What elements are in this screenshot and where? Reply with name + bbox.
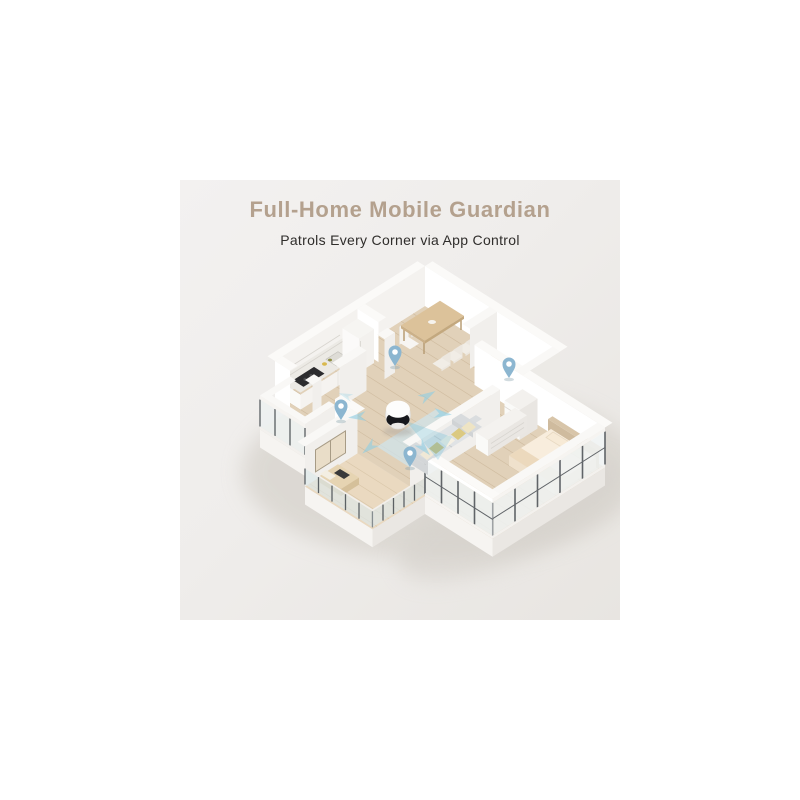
counter-item	[322, 362, 327, 365]
page-subtitle: Patrols Every Corner via App Control	[180, 232, 620, 248]
product-banner: Full-Home Mobile Guardian Patrols Every …	[180, 180, 620, 620]
header: Full-Home Mobile Guardian Patrols Every …	[180, 197, 620, 248]
page: { "header": { "title": "Full-Home Mobile…	[0, 0, 800, 800]
counter-item	[328, 359, 332, 362]
apartment	[242, 261, 620, 606]
page-title: Full-Home Mobile Guardian	[180, 197, 620, 223]
robot-camera	[383, 401, 413, 436]
